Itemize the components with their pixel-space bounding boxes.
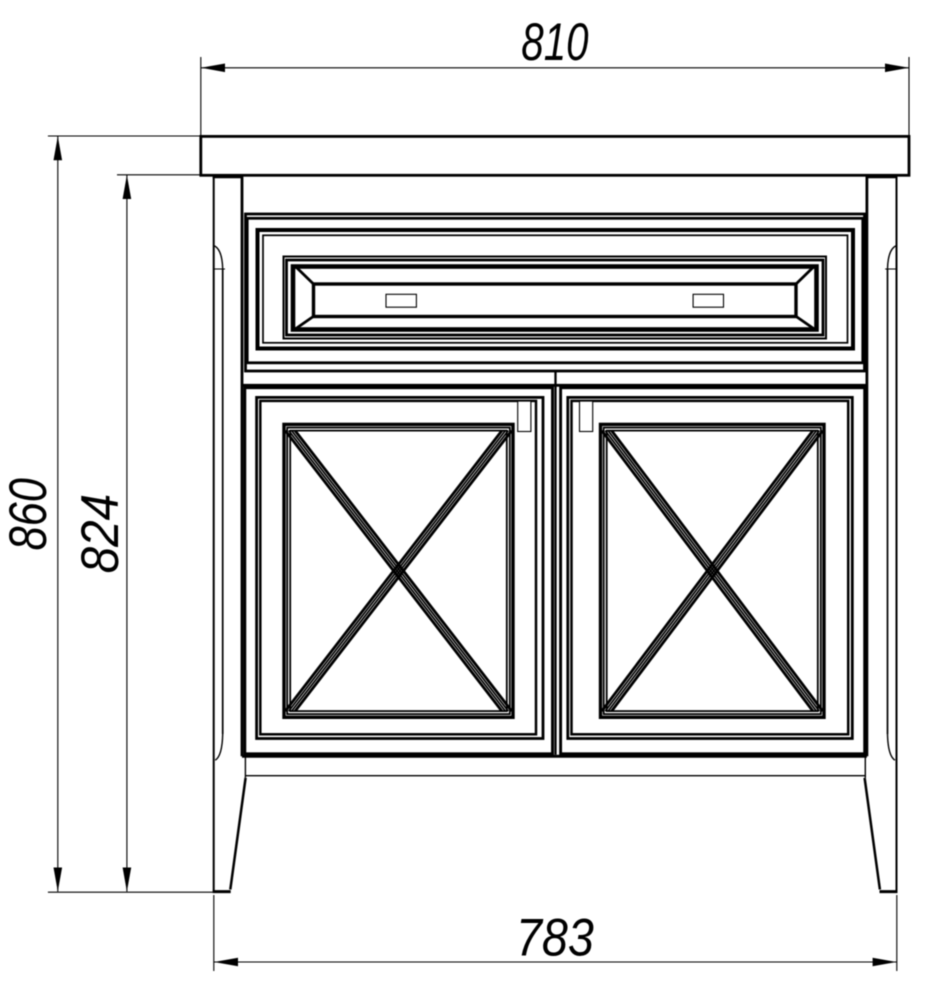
svg-text:824: 824 bbox=[70, 494, 130, 574]
svg-text:783: 783 bbox=[516, 908, 594, 967]
svg-text:860: 860 bbox=[0, 478, 58, 551]
svg-text:810: 810 bbox=[521, 11, 588, 71]
